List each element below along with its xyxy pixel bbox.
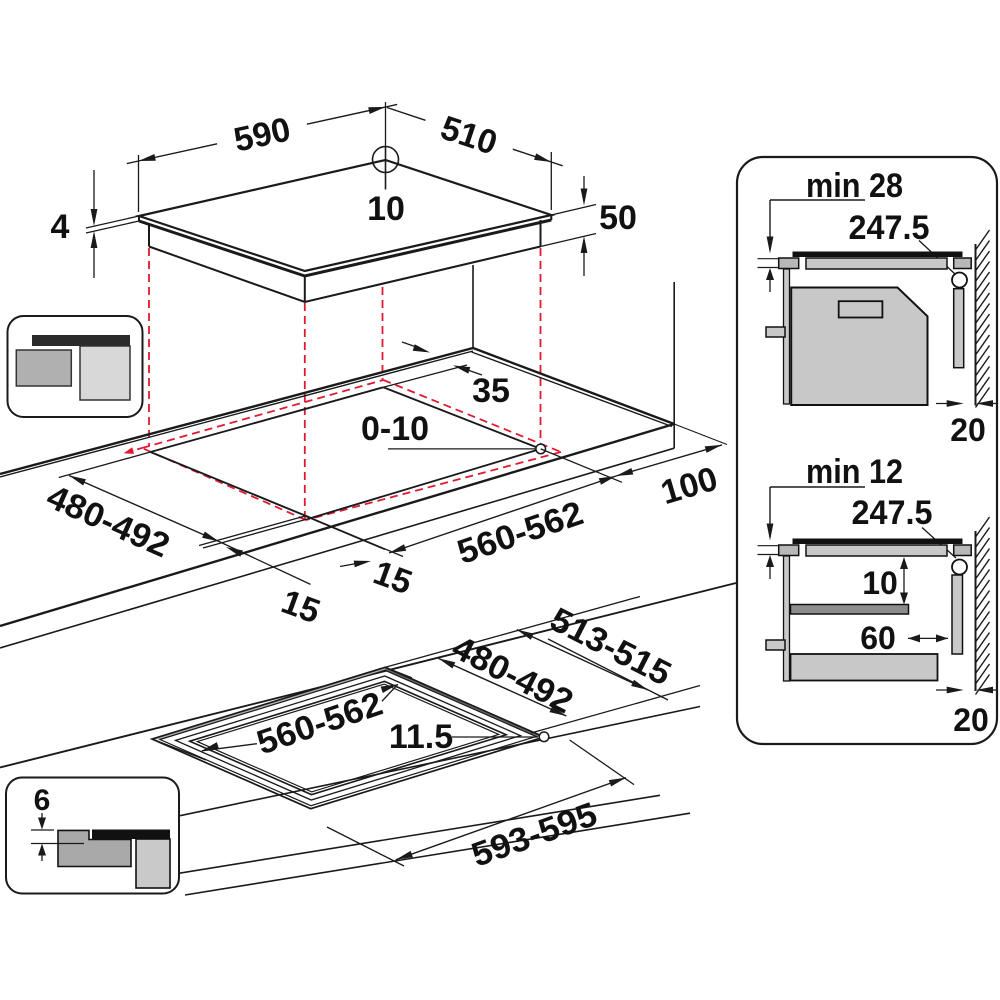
svg-text:247.5: 247.5 [852,494,933,532]
svg-text:560-562: 560-562 [453,494,588,572]
svg-text:10: 10 [367,190,405,228]
svg-text:247.5: 247.5 [849,209,930,247]
svg-text:480-492: 480-492 [446,628,579,721]
svg-text:4: 4 [51,208,70,246]
svg-text:35: 35 [472,372,510,410]
svg-text:0-10: 0-10 [361,410,429,448]
svg-text:480-492: 480-492 [41,478,175,566]
svg-text:100: 100 [657,460,722,512]
svg-text:6: 6 [34,784,51,817]
svg-text:15: 15 [368,554,417,603]
svg-text:min 12: min 12 [806,453,903,491]
svg-text:20: 20 [950,412,986,448]
svg-text:15: 15 [276,583,325,632]
svg-text:60: 60 [860,620,896,656]
svg-text:20: 20 [953,702,989,738]
svg-text:50: 50 [599,199,637,237]
svg-text:593-595: 593-595 [467,795,602,874]
svg-text:11.5: 11.5 [389,718,453,756]
svg-text:590: 590 [230,110,294,159]
svg-text:10: 10 [862,565,898,601]
svg-text:510: 510 [436,109,502,163]
